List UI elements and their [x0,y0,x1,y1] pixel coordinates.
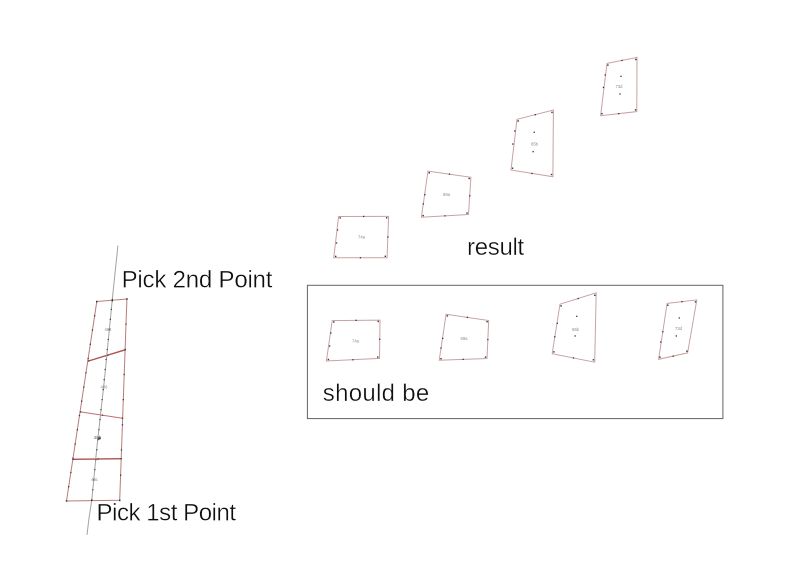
svg-text:74a: 74a [358,235,366,240]
svg-text:65b: 65b [572,327,580,332]
svg-text:Pick 1st Point: Pick 1st Point [97,500,237,527]
svg-text:73d: 73d [616,84,624,89]
svg-text:Pick 2nd Point: Pick 2nd Point [122,267,273,294]
svg-text:69a: 69a [443,192,451,197]
svg-text:73d: 73d [675,326,683,331]
svg-text:result: result [467,234,525,261]
svg-text:74a: 74a [352,339,360,344]
svg-text:69a: 69a [461,336,469,341]
svg-text:486: 486 [101,385,109,390]
svg-text:48c: 48c [91,477,98,482]
svg-text:65b: 65b [531,142,539,147]
svg-text:484: 484 [105,327,113,332]
svg-text:should be: should be [323,380,430,407]
svg-text:48b: 48b [94,435,102,440]
